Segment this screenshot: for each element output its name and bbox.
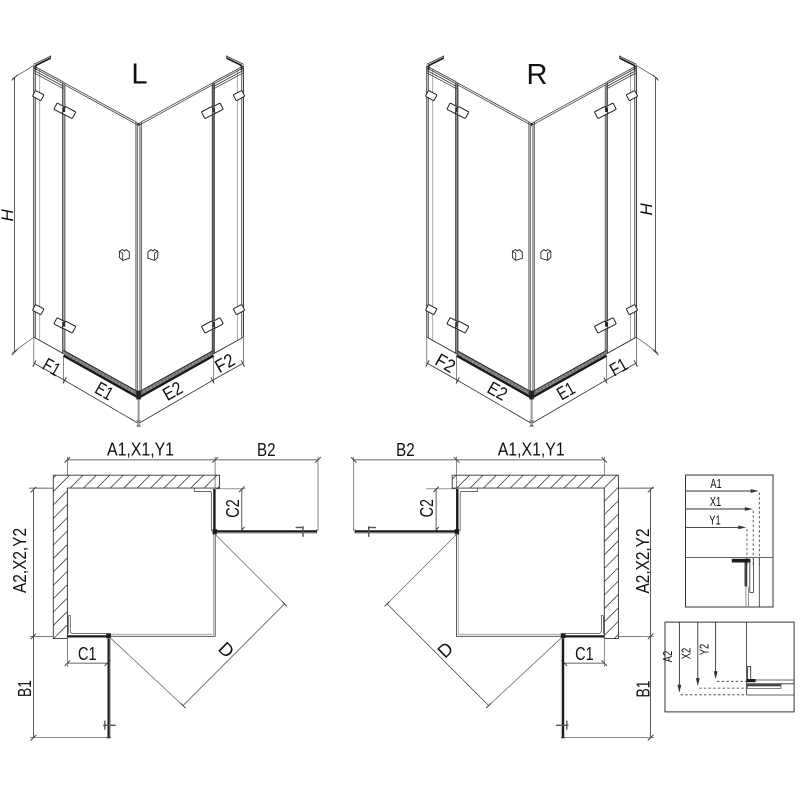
- svg-text:L: L: [131, 58, 147, 90]
- svg-text:A2,X2,Y2: A2,X2,Y2: [9, 528, 30, 593]
- svg-text:B1: B1: [633, 681, 654, 698]
- svg-text:H: H: [637, 203, 656, 216]
- svg-text:B2: B2: [396, 439, 415, 460]
- svg-text:Y2: Y2: [697, 644, 711, 656]
- svg-text:B2: B2: [257, 439, 276, 460]
- svg-text:C2: C2: [222, 499, 243, 517]
- svg-text:A2,X2,Y2: A2,X2,Y2: [632, 529, 653, 594]
- svg-text:B1: B1: [14, 680, 35, 697]
- svg-text:A1,X1,Y1: A1,X1,Y1: [498, 439, 565, 460]
- svg-text:R: R: [527, 59, 548, 91]
- svg-text:A1,X1,Y1: A1,X1,Y1: [107, 439, 174, 460]
- svg-text:H: H: [0, 208, 17, 221]
- svg-text:C1: C1: [78, 643, 97, 664]
- svg-text:X2: X2: [680, 648, 694, 660]
- svg-text:Y1: Y1: [709, 513, 721, 527]
- svg-text:C2: C2: [416, 499, 437, 517]
- svg-text:X1: X1: [710, 495, 722, 509]
- svg-text:C1: C1: [575, 643, 594, 664]
- svg-text:A1: A1: [710, 477, 722, 491]
- svg-text:A2: A2: [661, 651, 675, 663]
